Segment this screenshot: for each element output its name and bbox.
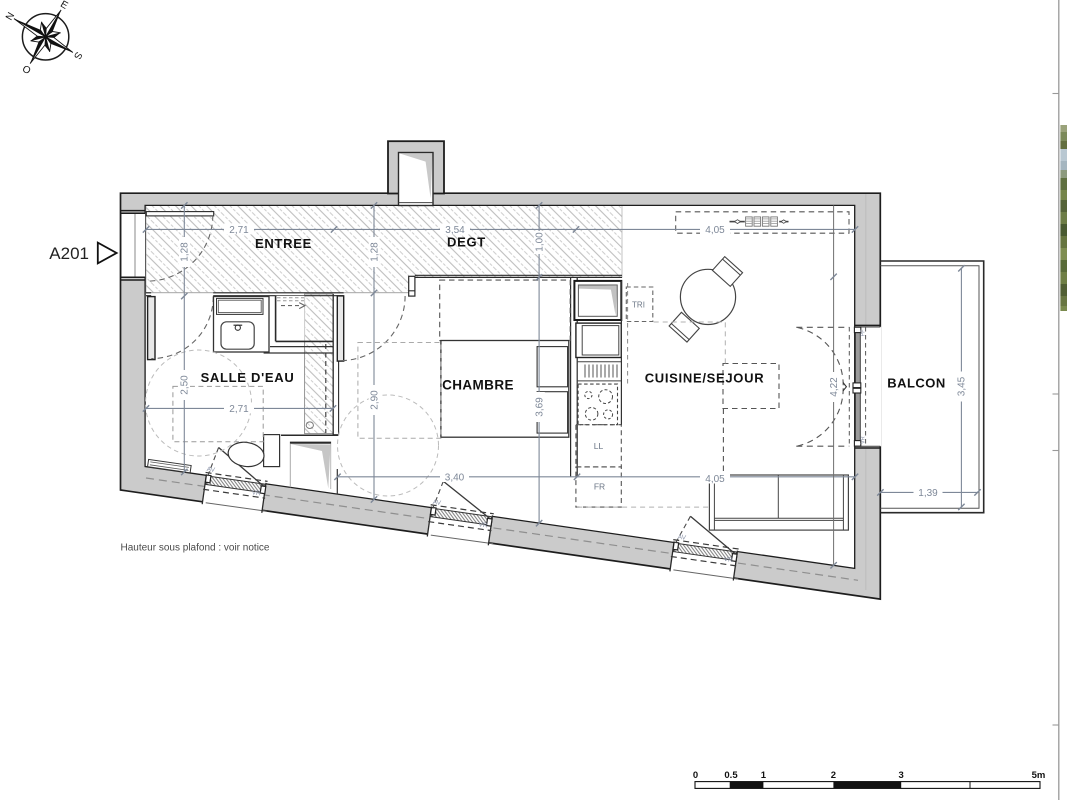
svg-text:VR: VR xyxy=(723,556,733,564)
svg-text:A201: A201 xyxy=(49,244,89,263)
svg-text:1,00: 1,00 xyxy=(534,232,545,252)
svg-text:3,45: 3,45 xyxy=(957,376,968,396)
svg-text:5m: 5m xyxy=(1032,770,1046,781)
svg-text:AV: AV xyxy=(206,466,216,474)
svg-text:CHAMBRE: CHAMBRE xyxy=(442,377,514,392)
svg-text:AV: AV xyxy=(677,534,687,542)
svg-text:TRI: TRI xyxy=(632,301,645,310)
svg-text:0.5: 0.5 xyxy=(724,770,738,781)
svg-text:VR: VR xyxy=(861,436,867,444)
svg-text:1,39: 1,39 xyxy=(918,488,938,499)
svg-text:SALLE D'EAU: SALLE D'EAU xyxy=(201,370,295,385)
svg-text:1: 1 xyxy=(761,770,767,781)
svg-text:2,71: 2,71 xyxy=(229,404,249,415)
svg-text:VR: VR xyxy=(251,489,261,497)
svg-text:LL: LL xyxy=(594,441,604,451)
svg-text:AV: AV xyxy=(432,499,442,507)
svg-text:3: 3 xyxy=(899,770,904,781)
svg-text:2,71: 2,71 xyxy=(229,225,249,236)
svg-text:1,28: 1,28 xyxy=(369,242,380,262)
svg-text:0: 0 xyxy=(693,770,698,781)
svg-text:2,50: 2,50 xyxy=(180,375,191,395)
svg-text:FR: FR xyxy=(594,481,605,491)
svg-text:4,05: 4,05 xyxy=(705,474,725,485)
svg-text:3,40: 3,40 xyxy=(445,473,465,484)
svg-text:2: 2 xyxy=(831,770,836,781)
svg-text:ENTREE: ENTREE xyxy=(255,236,312,251)
svg-text:CUISINE/SEJOUR: CUISINE/SEJOUR xyxy=(645,370,765,385)
svg-text:4,22: 4,22 xyxy=(829,377,840,397)
svg-text:4,05: 4,05 xyxy=(705,225,725,236)
svg-text:3,69: 3,69 xyxy=(534,397,545,417)
svg-text:2,90: 2,90 xyxy=(369,390,380,410)
svg-text:VR: VR xyxy=(478,521,488,529)
svg-text:PF: PF xyxy=(861,329,867,337)
svg-text:Hauteur sous plafond : voir no: Hauteur sous plafond : voir notice xyxy=(121,543,270,554)
svg-text:BALCON: BALCON xyxy=(887,376,946,391)
svg-text:DEGT: DEGT xyxy=(447,235,486,250)
svg-text:1,28: 1,28 xyxy=(180,242,191,262)
